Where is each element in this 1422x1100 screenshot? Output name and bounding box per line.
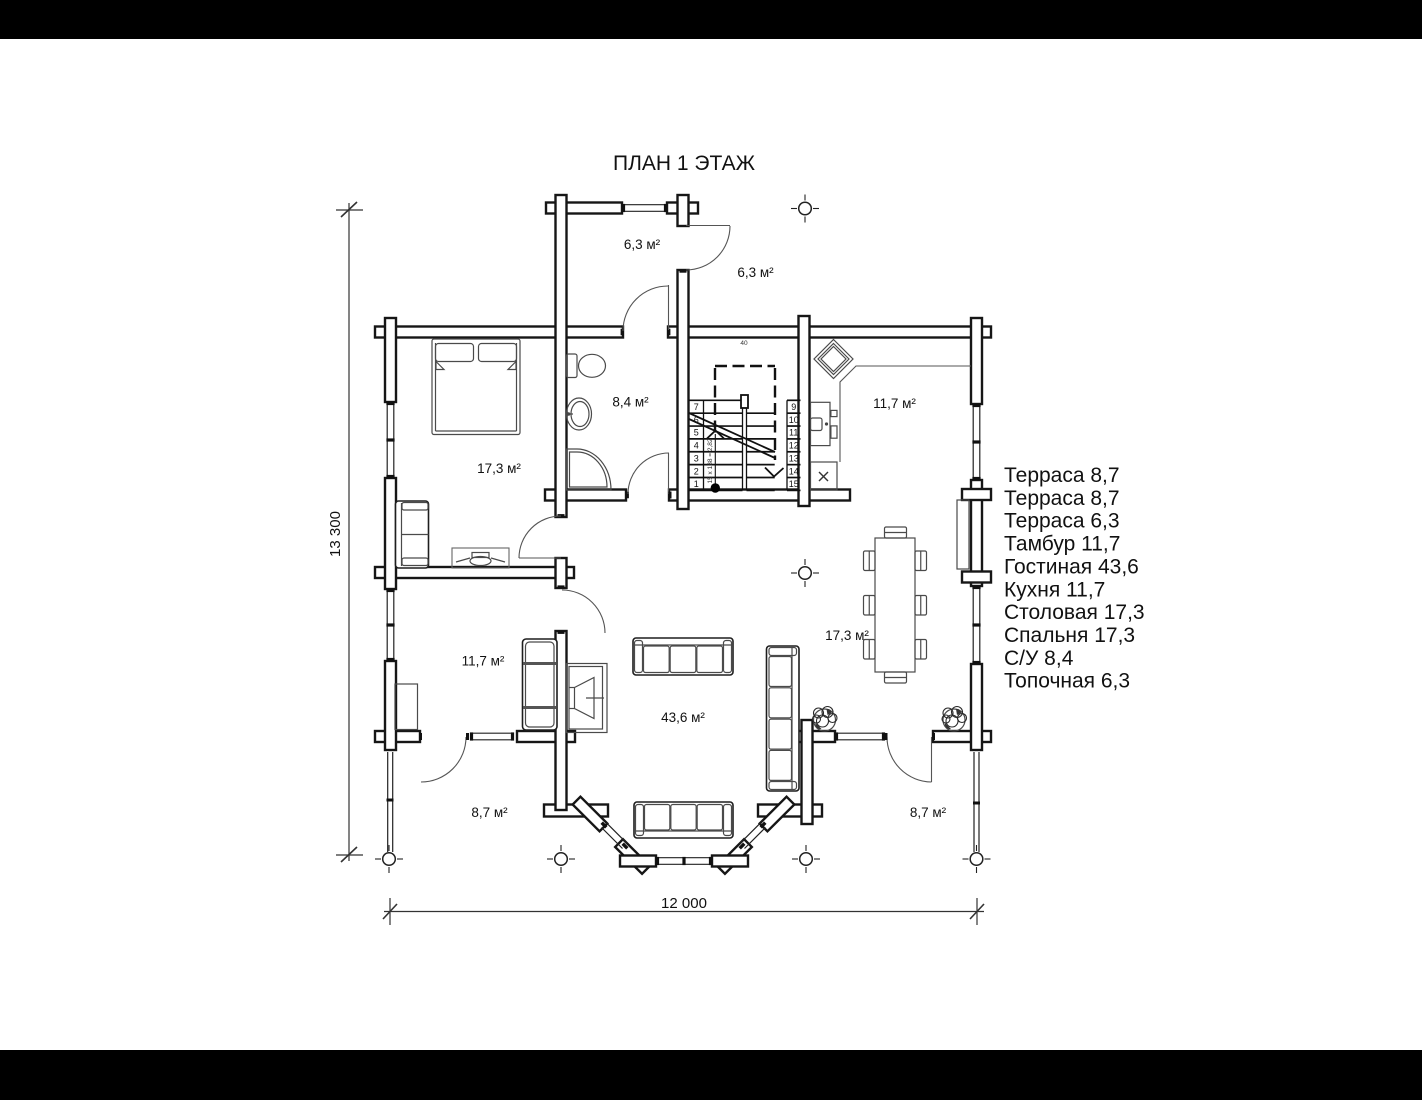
svg-text:4: 4: [694, 441, 699, 451]
svg-text:3: 3: [694, 453, 699, 463]
svg-text:5: 5: [694, 428, 699, 438]
svg-text:15 х 188 = 2,82: 15 х 188 = 2,82: [707, 438, 714, 483]
svg-text:13: 13: [789, 453, 799, 463]
svg-text:12: 12: [789, 441, 799, 451]
svg-text:Столовая 17,3: Столовая 17,3: [1004, 601, 1145, 624]
svg-text:7: 7: [694, 402, 699, 412]
svg-text:С/У 8,4: С/У 8,4: [1004, 647, 1074, 670]
svg-text:8,7 м²: 8,7 м²: [471, 805, 508, 820]
svg-text:ПЛАН 1 ЭТАЖ: ПЛАН 1 ЭТАЖ: [613, 152, 756, 175]
svg-text:10: 10: [789, 415, 799, 425]
svg-text:Терраса 8,7: Терраса 8,7: [1004, 487, 1120, 510]
svg-text:Терраса 8,7: Терраса 8,7: [1004, 464, 1120, 487]
svg-text:8,4 м²: 8,4 м²: [612, 395, 649, 410]
svg-text:14: 14: [789, 466, 799, 476]
svg-text:Топочная 6,3: Топочная 6,3: [1004, 670, 1130, 693]
svg-text:17,3 м²: 17,3 м²: [477, 461, 521, 476]
svg-text:6,3 м²: 6,3 м²: [737, 265, 774, 280]
svg-text:Гостиная 43,6: Гостиная 43,6: [1004, 555, 1139, 578]
svg-text:Спальня 17,3: Спальня 17,3: [1004, 624, 1135, 647]
svg-text:2: 2: [694, 466, 699, 476]
svg-text:11,7 м²: 11,7 м²: [462, 654, 505, 669]
svg-text:6,3 м²: 6,3 м²: [624, 237, 661, 252]
svg-text:12 000: 12 000: [661, 895, 707, 912]
svg-text:Терраса 6,3: Терраса 6,3: [1004, 510, 1120, 533]
svg-text:43,6 м²: 43,6 м²: [661, 710, 705, 725]
svg-text:13 300: 13 300: [327, 511, 344, 557]
svg-text:11: 11: [789, 428, 798, 438]
svg-text:Кухня 11,7: Кухня 11,7: [1004, 578, 1105, 601]
svg-text:15: 15: [789, 479, 799, 489]
svg-text:17,3 м²: 17,3 м²: [825, 628, 869, 643]
svg-text:1: 1: [694, 479, 699, 489]
svg-text:9: 9: [791, 402, 796, 412]
svg-text:Тамбур 11,7: Тамбур 11,7: [1004, 533, 1120, 556]
svg-text:11,7 м²: 11,7 м²: [873, 396, 916, 411]
svg-text:8,7 м²: 8,7 м²: [910, 805, 947, 820]
svg-text:40: 40: [740, 340, 748, 347]
